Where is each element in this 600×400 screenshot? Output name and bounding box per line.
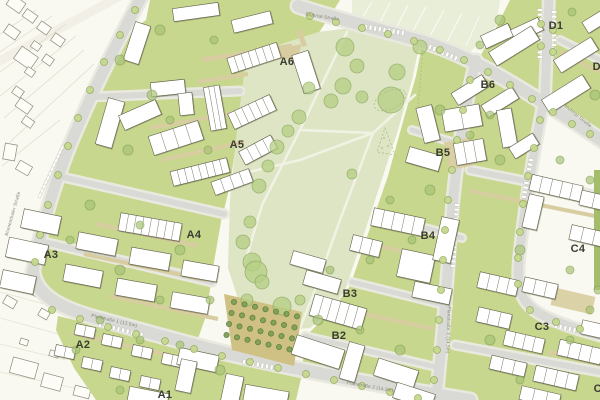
street-tree xyxy=(485,69,492,76)
existing-building xyxy=(3,143,18,161)
street-tree xyxy=(525,173,532,180)
street-tree xyxy=(515,255,522,262)
park-tree xyxy=(282,125,294,137)
park-tree xyxy=(324,94,338,108)
street-tree xyxy=(517,229,524,236)
street-tree xyxy=(538,21,545,28)
street-tree xyxy=(507,82,514,89)
park-tree xyxy=(244,216,256,228)
street-tree xyxy=(331,377,338,384)
block-tree xyxy=(566,266,574,274)
orchard-tree xyxy=(229,310,234,315)
block-tree xyxy=(155,25,165,35)
block-label-a4: A4 xyxy=(187,229,202,241)
street-tree xyxy=(436,317,443,324)
orchard-tree xyxy=(276,344,281,349)
parking-stall xyxy=(552,11,557,14)
block-tree xyxy=(85,200,95,210)
orchard-tree xyxy=(224,332,229,337)
existing-building xyxy=(41,373,64,392)
block-tree xyxy=(326,266,334,274)
park-tree xyxy=(295,295,305,305)
site-plan-map: Blumenthaler Straße Planstraße 1 (12.5m)… xyxy=(0,0,600,400)
street-tree xyxy=(101,59,108,66)
block-tree xyxy=(466,131,474,139)
block-tree xyxy=(515,245,525,255)
block-tree xyxy=(556,156,564,164)
parking-stall xyxy=(538,51,543,54)
street-tree xyxy=(449,167,456,174)
block-tree xyxy=(313,315,323,325)
street-tree xyxy=(77,316,84,323)
parking-stall xyxy=(538,13,543,16)
park-tree xyxy=(350,59,364,73)
park-tree xyxy=(356,91,368,103)
park-tree xyxy=(389,64,405,80)
block-tree xyxy=(568,8,576,16)
existing-building xyxy=(22,9,38,24)
block-label-c4: C4 xyxy=(571,243,586,255)
block-tree xyxy=(586,306,594,314)
orchard-tree xyxy=(245,337,250,342)
block-tree xyxy=(166,116,174,124)
block-tree xyxy=(176,341,184,349)
parking-stall xyxy=(454,208,459,211)
existing-building xyxy=(3,295,18,309)
block-label-b3: B3 xyxy=(343,288,358,300)
street-tree xyxy=(37,232,44,239)
block-tree xyxy=(366,256,374,264)
park-tree xyxy=(335,78,351,94)
site-plan-canvas: Blumenthaler Straße Planstraße 1 (12.5m)… xyxy=(0,0,600,400)
orchard-tree xyxy=(234,335,239,340)
parking-stall xyxy=(552,15,557,18)
park-tree xyxy=(255,275,269,289)
parking-stall xyxy=(369,25,372,30)
street-tree xyxy=(538,43,545,50)
street-tree xyxy=(359,25,366,32)
orchard-tree xyxy=(279,333,284,338)
block-label-b6: B6 xyxy=(481,79,496,91)
parking-stall xyxy=(374,26,377,31)
street-tree xyxy=(527,307,534,314)
orchard-tree xyxy=(263,307,268,312)
parking-stall xyxy=(454,213,459,216)
orchard-tree xyxy=(237,324,242,329)
existing-building xyxy=(15,98,33,115)
street-tree xyxy=(467,77,474,84)
parking-stall xyxy=(552,34,557,37)
parking-stall xyxy=(397,30,400,35)
orchard-tree xyxy=(252,304,257,309)
street-tree xyxy=(219,353,226,360)
park-tree xyxy=(252,179,266,193)
existing-building xyxy=(6,0,26,14)
parking-stall xyxy=(392,29,395,34)
street-tree xyxy=(437,47,444,54)
existing-building xyxy=(9,357,38,379)
orchard-tree xyxy=(292,325,297,330)
parking-stall xyxy=(454,203,459,206)
block-tree xyxy=(590,90,600,100)
street-tree xyxy=(440,257,447,264)
parking-stall xyxy=(552,44,557,47)
street-tree xyxy=(531,145,538,152)
park-tree xyxy=(303,82,315,94)
block-tree xyxy=(156,296,164,304)
orchard-tree xyxy=(260,318,265,323)
street-tree xyxy=(303,371,310,378)
orchard-tree xyxy=(266,342,271,347)
block-label-a6: A6 xyxy=(280,56,295,68)
block-label-c3: C3 xyxy=(535,321,550,333)
block-tree xyxy=(136,221,144,229)
parking-stall xyxy=(378,27,381,32)
existing-building xyxy=(15,160,32,176)
block-tree xyxy=(116,386,124,394)
parking-stall xyxy=(552,39,557,42)
block-tree xyxy=(408,236,416,244)
road xyxy=(545,0,549,96)
existing-building xyxy=(12,86,25,98)
street-tree xyxy=(133,331,140,338)
street-tree xyxy=(550,109,557,116)
street-tree xyxy=(460,107,467,114)
block-label-b2: B2 xyxy=(332,330,347,342)
parking-stall xyxy=(401,30,404,35)
street-tree xyxy=(105,324,112,331)
street-tree xyxy=(537,117,544,124)
orchard-tree xyxy=(284,311,289,316)
block-label-d2: D2 xyxy=(593,61,600,73)
orchard-tree xyxy=(231,299,236,304)
block-tree xyxy=(495,155,505,165)
block-tree xyxy=(594,286,600,294)
street-tree xyxy=(45,202,52,209)
street-tree xyxy=(445,197,452,204)
block-tree xyxy=(210,36,218,44)
orchard-tree xyxy=(239,313,244,318)
orchard-tree xyxy=(281,322,286,327)
block-tree xyxy=(147,90,157,100)
block-tree xyxy=(175,245,185,255)
park-dot xyxy=(383,137,385,139)
park-tree xyxy=(236,235,250,249)
street-tree xyxy=(55,172,62,179)
block-tree xyxy=(435,105,445,115)
existing-building xyxy=(3,24,20,40)
block-tree xyxy=(586,176,594,184)
orchard-tree xyxy=(273,309,278,314)
orchard-tree xyxy=(289,336,294,341)
block-label-a1: A1 xyxy=(158,389,173,400)
block-tree xyxy=(425,185,435,195)
street-tree xyxy=(162,338,169,345)
street-tree xyxy=(275,365,282,372)
block-tree xyxy=(485,335,495,345)
existing-building xyxy=(42,54,55,66)
orchard-tree xyxy=(294,314,299,319)
street-tree xyxy=(415,395,422,400)
street-tree xyxy=(550,49,557,56)
block-tree xyxy=(115,55,125,65)
block-tree xyxy=(566,336,574,344)
street-tree xyxy=(247,359,254,366)
orchard-tree xyxy=(255,340,260,345)
orchard-tree xyxy=(226,321,231,326)
park-dot xyxy=(387,145,389,147)
street-tree xyxy=(442,227,449,234)
parking-stall xyxy=(450,265,455,268)
block-tree xyxy=(495,15,505,25)
block-label-a3: A3 xyxy=(44,249,59,261)
street-tree xyxy=(569,121,576,128)
park-tree xyxy=(378,87,404,113)
block-tree xyxy=(66,236,74,244)
block-label-c2: C2 xyxy=(594,383,600,395)
block-label-b5: B5 xyxy=(436,147,451,159)
street-tree xyxy=(434,347,441,354)
block-tree xyxy=(206,296,214,304)
street-tree xyxy=(587,131,594,138)
street-tree xyxy=(438,287,445,294)
block-tree xyxy=(395,345,405,355)
block-tree xyxy=(356,326,364,334)
parcel-line xyxy=(0,318,58,334)
block-tree xyxy=(516,376,524,384)
street-tree xyxy=(65,143,72,150)
block-label-a5: A5 xyxy=(230,139,245,151)
street-tree xyxy=(529,96,536,103)
park-tree xyxy=(347,169,357,179)
orchard-tree xyxy=(268,331,273,336)
street-tree xyxy=(431,377,438,384)
block-tree xyxy=(204,146,212,154)
street-tree xyxy=(32,259,39,266)
block-label-d1: D1 xyxy=(549,20,564,32)
orchard-tree xyxy=(258,329,263,334)
block-tree xyxy=(476,41,484,49)
street-tree xyxy=(520,201,527,208)
street-tree xyxy=(117,32,124,39)
building xyxy=(178,92,194,115)
street-tree xyxy=(577,326,584,333)
block-label-a2: A2 xyxy=(76,339,91,351)
street-tree xyxy=(132,7,139,14)
park-dot xyxy=(381,147,383,149)
orchard-tree xyxy=(287,347,292,352)
block-label-b4: B4 xyxy=(421,230,436,242)
orchard-tree xyxy=(247,326,252,331)
existing-building xyxy=(21,116,35,129)
street-tree xyxy=(411,38,418,45)
orchard-tree xyxy=(242,302,247,307)
block-tree xyxy=(115,265,125,275)
street-tree xyxy=(49,307,56,314)
park-tree xyxy=(270,140,284,154)
street-label-blumenthaler: Blumenthaler Straße xyxy=(4,191,22,237)
street-tree xyxy=(191,346,198,353)
street-tree xyxy=(385,31,392,38)
existing-building xyxy=(19,338,28,346)
parking-stall xyxy=(38,192,42,198)
park-tree xyxy=(336,38,354,56)
orchard-tree xyxy=(271,320,276,325)
parking-stall xyxy=(538,9,543,12)
block-tree xyxy=(486,111,494,119)
block-tree xyxy=(386,196,394,204)
parking-stall xyxy=(538,56,543,59)
street-tree xyxy=(454,137,461,144)
park-tree xyxy=(292,110,306,124)
orchard-tree xyxy=(250,315,255,320)
street-tree xyxy=(461,57,468,64)
block-tree xyxy=(123,145,133,155)
park-tree xyxy=(262,160,274,172)
block-tree xyxy=(215,365,225,375)
street-tree xyxy=(75,115,82,122)
street-tree xyxy=(553,319,560,326)
street-tree xyxy=(87,87,94,94)
street-tree xyxy=(515,281,522,288)
